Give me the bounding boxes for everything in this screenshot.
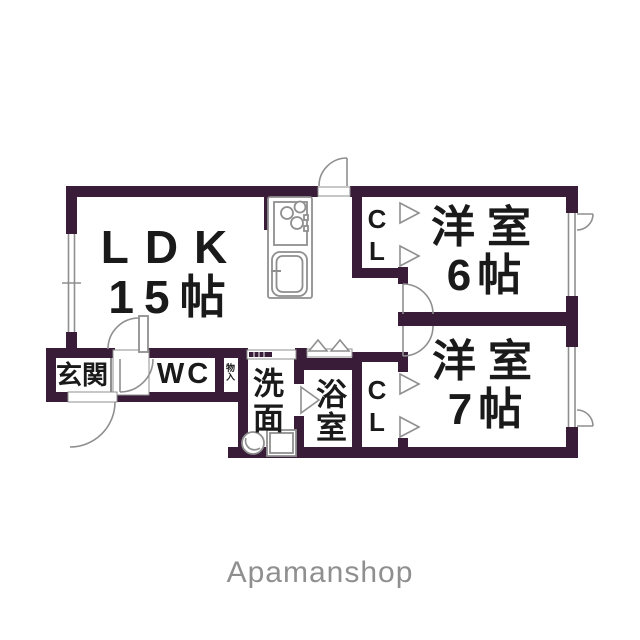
watermark-logo: Apamanshop — [160, 556, 480, 590]
room-size-western6: 6帖 — [408, 254, 566, 298]
window-icon-room7 — [566, 347, 593, 427]
door-swing-icon-kitchen-service — [318, 158, 350, 196]
room-label-western6: 洋室 — [408, 206, 566, 250]
sliding-door-icon-washroom — [247, 350, 296, 359]
room-label-closet-top: CL — [364, 204, 390, 268]
room-label-storage: 物入 — [225, 363, 234, 381]
room-label-bathroom: 浴室 — [313, 378, 344, 444]
room-label-western7: 洋室 — [410, 340, 566, 384]
room-label-closet-bottom: CL — [364, 375, 390, 439]
room-label-ldk: LDK — [82, 224, 262, 270]
door-swing-icon-entrance — [68, 392, 117, 447]
window-icon-left — [62, 234, 81, 332]
floorplan-page: LDK 15帖 洋室 6帖 洋室 7帖 玄関 WC 洗面 浴室 CL CL 物入… — [0, 0, 640, 640]
kitchen-sink-icon — [271, 252, 307, 296]
room-label-entrance: 玄関 — [54, 362, 110, 388]
room-size-western7: 7帖 — [410, 388, 566, 432]
window-icon-room6 — [566, 213, 593, 296]
room-label-washroom: 洗面 — [250, 367, 281, 437]
vent-window-icon — [307, 340, 352, 357]
floorplan-drawing — [0, 0, 640, 640]
room-label-wc: WC — [152, 360, 216, 389]
stove-burners-icon — [274, 202, 308, 246]
room-size-ldk: 15帖 — [82, 274, 262, 320]
kitchen-unit-icon — [268, 197, 312, 298]
